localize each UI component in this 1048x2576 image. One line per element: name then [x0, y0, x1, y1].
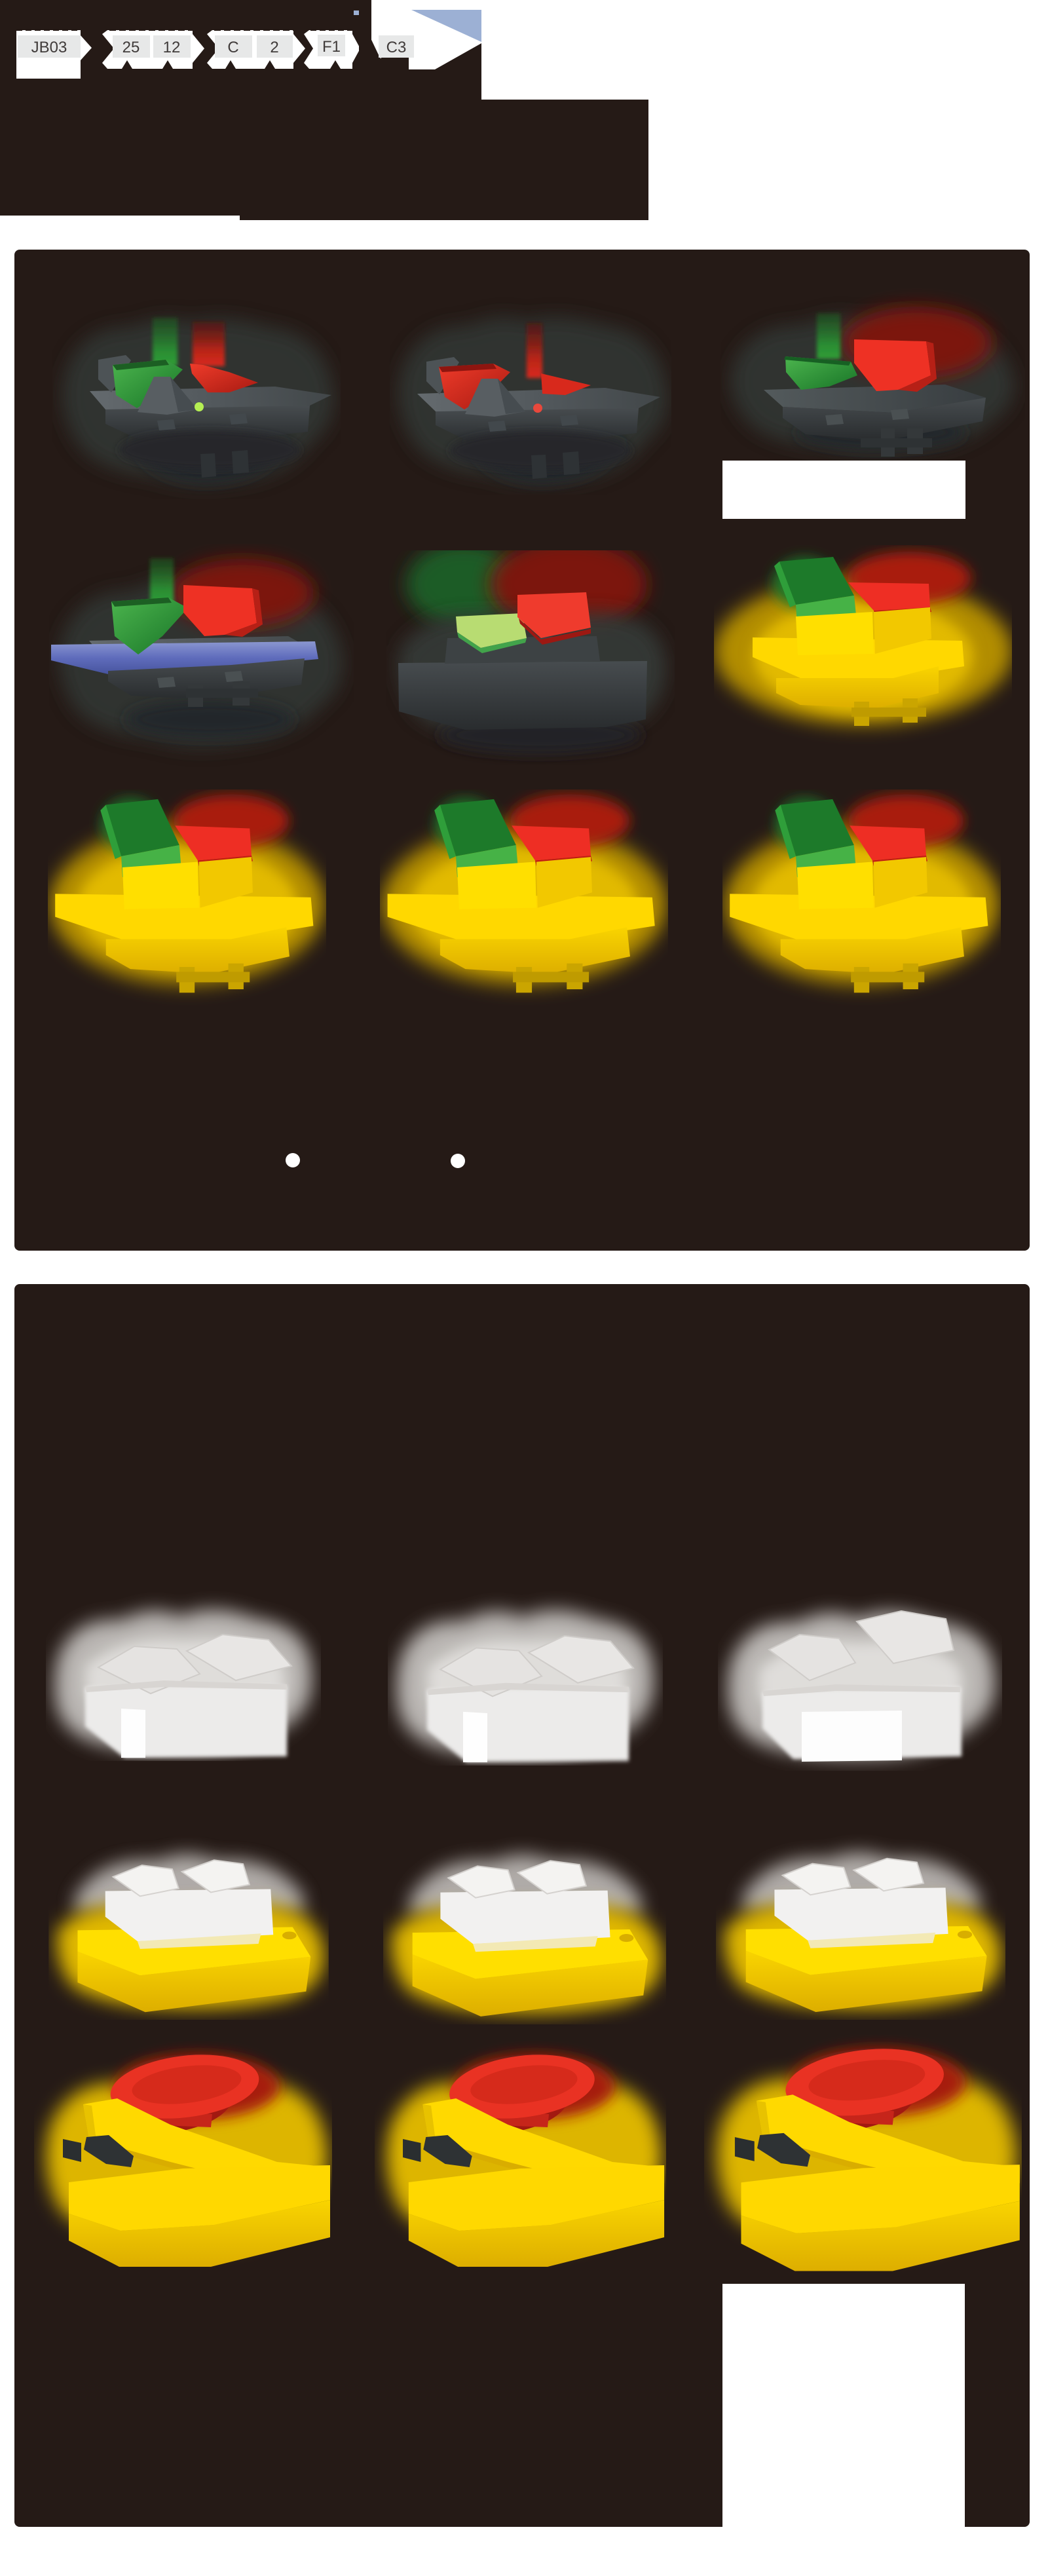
svg-text:12: 12 [163, 39, 181, 56]
svg-text:C3: C3 [386, 39, 407, 56]
svg-text:2: 2 [270, 39, 278, 56]
svg-text:C: C [227, 39, 238, 56]
svg-text:F1: F1 [322, 38, 341, 56]
svg-text:25: 25 [122, 39, 140, 56]
svg-text:JB03: JB03 [31, 39, 67, 56]
